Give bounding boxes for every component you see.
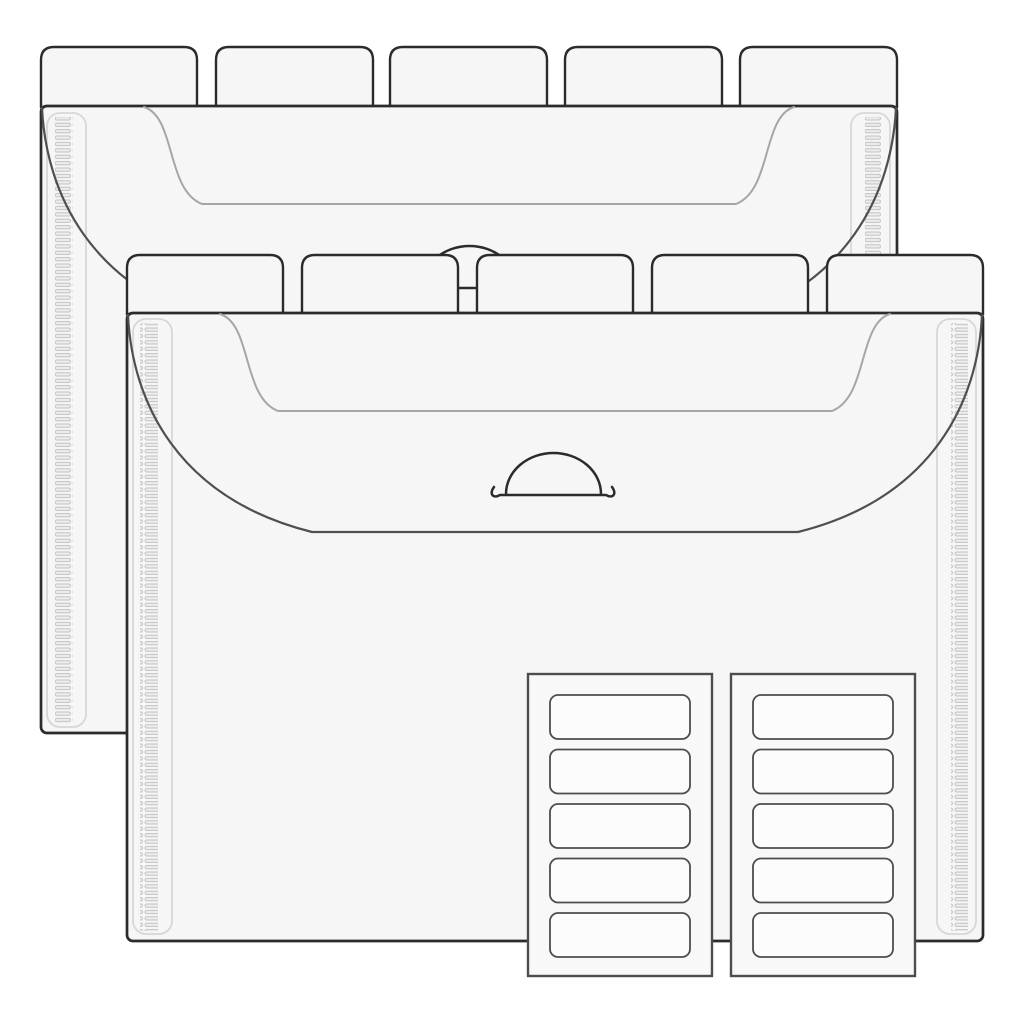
label-sheet-1-slot-1 [550, 695, 690, 739]
front-folder-left-gusset-texture [140, 323, 158, 931]
label-sheet-2-slot-2 [753, 750, 893, 794]
back-folder-tab-2 [216, 47, 373, 107]
label-sheet-1-slot-3 [550, 804, 690, 848]
illustration-canvas [0, 0, 1024, 1024]
front-folder-tab-3 [477, 255, 633, 314]
label-sheet-1-slot-5 [550, 913, 690, 957]
back-folder-tab-3 [390, 47, 547, 107]
front-folder-tab-2 [302, 255, 458, 314]
product-illustration [0, 0, 1024, 1024]
back-folder-tab-5 [740, 47, 897, 107]
label-sheet-1-slot-2 [550, 750, 690, 794]
label-sheet-2-slot-1 [753, 695, 893, 739]
label-sheet-1-slot-4 [550, 859, 690, 903]
label-sheet-2-slot-3 [753, 804, 893, 848]
label-sheet-2-slot-4 [753, 859, 893, 903]
back-folder-tab-4 [565, 47, 722, 107]
front-folder-tab-4 [652, 255, 808, 314]
front-folder-tab-5 [827, 255, 983, 314]
label-sheet-2 [731, 674, 915, 976]
front-folder-right-gusset-texture [951, 323, 968, 931]
back-folder-left-gusset-texture [55, 117, 73, 724]
label-sheet-2-slot-5 [753, 913, 893, 957]
label-sheet-1 [528, 674, 712, 976]
back-folder-tab-1 [41, 47, 197, 107]
front-folder-tab-1 [127, 255, 283, 314]
